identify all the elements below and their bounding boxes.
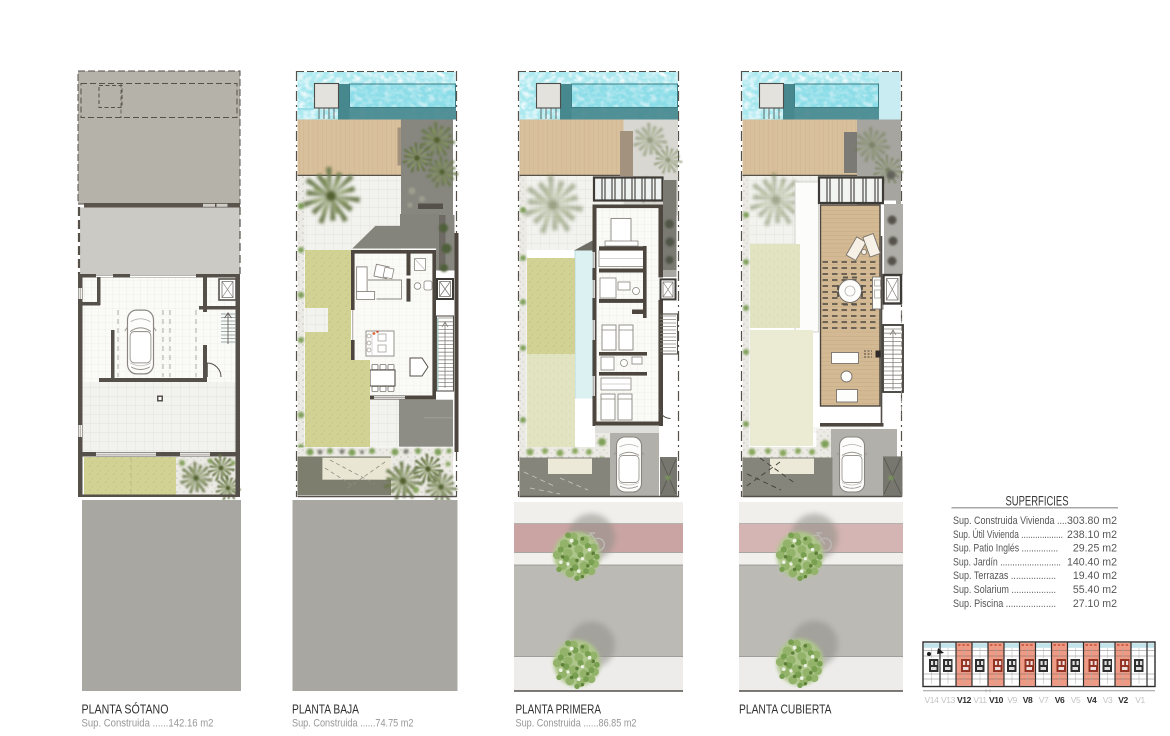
svg-text:V14: V14	[925, 695, 940, 705]
svg-text:V3: V3	[1103, 695, 1113, 705]
svg-text:Sup. Patio Inglés ............: Sup. Patio Inglés ...............	[953, 543, 1058, 555]
svg-text:Sup. Útil Vivienda ...........: Sup. Útil Vivienda ..................	[953, 528, 1063, 541]
svg-text:PLANTA BAJA: PLANTA BAJA	[292, 702, 359, 717]
svg-text:V8: V8	[1023, 695, 1033, 705]
svg-text:V10: V10	[989, 695, 1004, 705]
svg-text:Sup. Terrazas ................: Sup. Terrazas ..................	[953, 570, 1056, 582]
svg-text:27.10 m2: 27.10 m2	[1073, 598, 1117, 610]
svg-text:V6: V6	[1055, 695, 1065, 705]
svg-text:55.40 m2: 55.40 m2	[1073, 584, 1117, 596]
svg-text:V7: V7	[1039, 695, 1049, 705]
svg-text:Sup. Jardín ..................: Sup. Jardín .........................	[953, 556, 1061, 568]
svg-text:PLANTA SÓTANO: PLANTA SÓTANO	[82, 702, 169, 717]
svg-text:V9: V9	[1007, 695, 1017, 705]
svg-text:Sup. Construida Vivienda ....: Sup. Construida Vivienda ....	[953, 515, 1067, 527]
svg-text:V5: V5	[1071, 695, 1081, 705]
svg-text:Sup. Construida ......86.85 m2: Sup. Construida ......86.85 m2	[516, 718, 637, 730]
svg-text:238.10 m2: 238.10 m2	[1067, 529, 1117, 541]
svg-text:Sup. Solarium ................: Sup. Solarium ..................	[953, 584, 1056, 596]
svg-text:SUPERFICIES: SUPERFICIES	[1006, 494, 1069, 509]
svg-text:V4: V4	[1087, 695, 1097, 705]
svg-text:Sup. Construida ......74.75 m2: Sup. Construida ......74.75 m2	[292, 718, 414, 730]
svg-text:V11: V11	[973, 695, 987, 705]
svg-text:Sup. Construida ......142.16 m: Sup. Construida ......142.16 m2	[82, 718, 214, 730]
svg-text:29.25 m2: 29.25 m2	[1073, 543, 1117, 555]
svg-text:PLANTA CUBIERTA: PLANTA CUBIERTA	[739, 702, 832, 717]
svg-text:303.80 m2: 303.80 m2	[1067, 515, 1117, 527]
svg-text:V2: V2	[1118, 695, 1128, 705]
svg-text:Sup. Piscina .................: Sup. Piscina ....................	[953, 598, 1056, 610]
svg-text:140.40 m2: 140.40 m2	[1067, 556, 1117, 568]
svg-text:V12: V12	[957, 695, 972, 705]
svg-text:V1: V1	[1135, 695, 1145, 705]
svg-text:PLANTA PRIMERA: PLANTA PRIMERA	[516, 702, 602, 717]
svg-text:19.40 m2: 19.40 m2	[1073, 570, 1117, 582]
svg-text:V13: V13	[941, 695, 956, 705]
